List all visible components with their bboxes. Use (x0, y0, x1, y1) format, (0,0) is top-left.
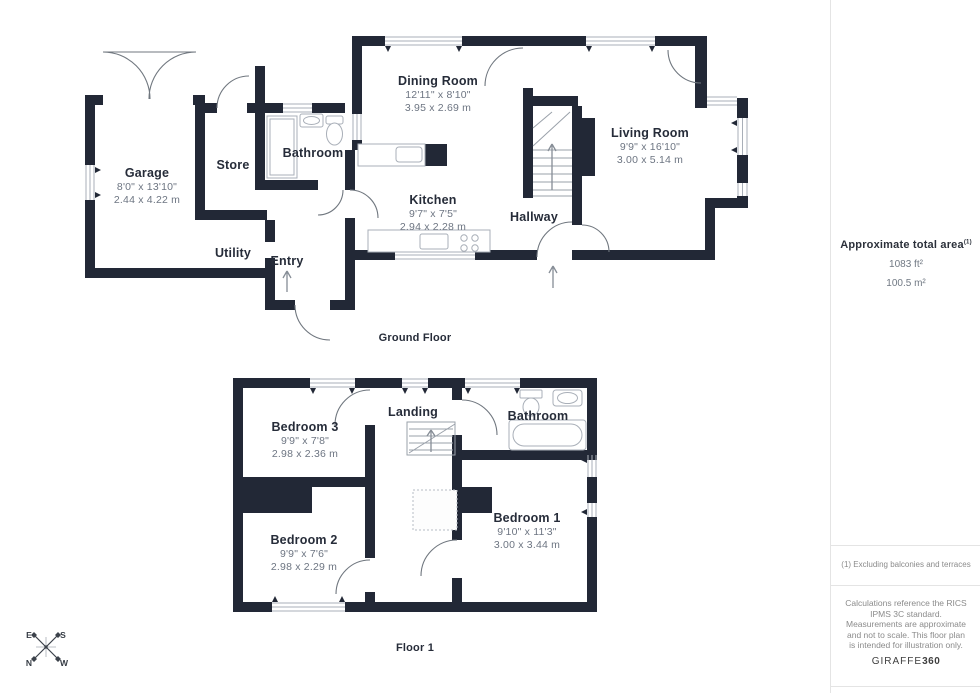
divider (831, 585, 980, 586)
compass-icon: E S N W (26, 630, 69, 668)
compass-south-label: S (60, 630, 66, 640)
total-area-metric: 100.5 m² (831, 278, 980, 289)
total-area-title-text: Approximate total area (840, 239, 964, 251)
ground-floor-walls (85, 36, 748, 310)
ground-floor-plan (85, 36, 748, 340)
stairs-icon (533, 112, 572, 196)
door-swing-arcs (217, 48, 701, 340)
garage-door-icon (103, 52, 196, 99)
info-sidebar: Approximate total area(1) 1083 ft² 100.5… (830, 0, 980, 693)
bathtub-icon (509, 420, 586, 450)
entrance-arrow-icon (283, 266, 557, 292)
floorplan-page: E S N W Garage 8'0" x 13'10" 2.44 x 4.22… (0, 0, 980, 693)
compass-east-label: E (26, 630, 32, 640)
total-area-block: Approximate total area(1) 1083 ft² 100.5… (831, 239, 980, 289)
divider (831, 686, 980, 687)
toilet-icon (326, 116, 343, 145)
floor-1-label: Floor 1 (396, 642, 434, 654)
brand-suffix: 360 (922, 656, 940, 667)
shower-icon (267, 116, 297, 178)
stairs-icon (407, 422, 455, 455)
area-footnote: (1) Excluding balconies and terraces (831, 560, 980, 571)
compass-west-label: W (60, 658, 69, 668)
kitchen-counter-icon (358, 144, 490, 252)
ground-floor-label: Ground Floor (379, 332, 452, 344)
compass-north-label: N (26, 658, 32, 668)
footnote-marker: (1) (964, 239, 972, 245)
toilet-icon (520, 390, 542, 416)
brand-name: GIRAFFE (872, 656, 922, 667)
total-area-title: Approximate total area(1) (831, 239, 980, 251)
disclaimer-text: Calculations reference the RICS IPMS 3C … (831, 598, 980, 651)
total-area-imperial: 1083 ft² (831, 259, 980, 270)
sink-icon (553, 390, 582, 406)
stair-void (413, 490, 457, 530)
giraffe360-logo: GIRAFFE360 (831, 656, 980, 667)
floor-1-plan (233, 378, 597, 612)
sink-icon (300, 114, 323, 127)
divider (831, 545, 980, 546)
